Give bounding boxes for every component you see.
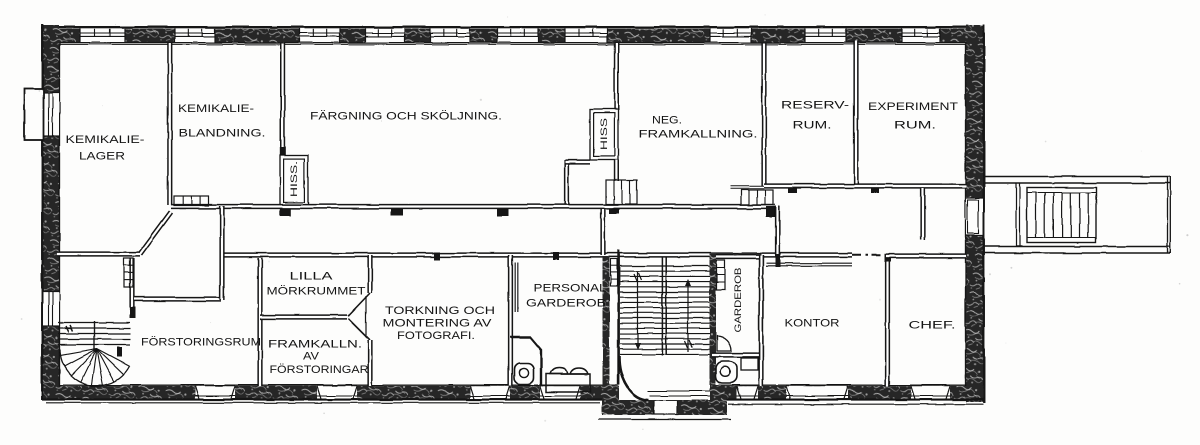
svg-text:LAGER: LAGER [79,151,125,163]
svg-text:FOTOGRAFI.: FOTOGRAFI. [397,330,475,342]
svg-text:NEG.: NEG. [652,115,682,127]
svg-text:GARDEROB: GARDEROB [733,268,744,333]
svg-text:KEMIKALIE-: KEMIKALIE- [66,134,145,146]
svg-text:EXPERIMENT: EXPERIMENT [868,101,958,113]
svg-text:GARDEROB: GARDEROB [526,298,606,310]
svg-text:RUM.: RUM. [894,120,936,132]
svg-text:BLANDNING.: BLANDNING. [179,128,266,140]
svg-text:LILLA: LILLA [290,271,334,283]
svg-text:FRAMKALLNING.: FRAMKALLNING. [639,129,758,141]
svg-text:FÖRSTORINGSRUM: FÖRSTORINGSRUM [141,337,261,349]
svg-text:FRAMKALLN.: FRAMKALLN. [268,339,362,351]
svg-text:AV: AV [303,351,320,363]
svg-text:KONTOR: KONTOR [785,318,840,330]
svg-text:FÄRGNING OCH SKÖLJNING.: FÄRGNING OCH SKÖLJNING. [310,111,502,123]
svg-text:HISS.: HISS. [289,161,300,197]
svg-text:CHEF.: CHEF. [909,320,956,332]
svg-text:HISS: HISS [599,118,610,150]
svg-text:MONTERING AV: MONTERING AV [383,318,493,330]
svg-text:RUM.: RUM. [793,120,832,132]
svg-text:KEMIKALIE-: KEMIKALIE- [178,103,254,115]
svg-text:PERSONAL: PERSONAL [534,283,607,295]
svg-text:MÖRKRUMMET: MÖRKRUMMET [267,286,366,298]
svg-text:RESERV-: RESERV- [781,100,849,112]
svg-text:TORKNING OCH: TORKNING OCH [385,305,495,317]
svg-text:FÖRSTORINGAR: FÖRSTORINGAR [270,364,369,376]
